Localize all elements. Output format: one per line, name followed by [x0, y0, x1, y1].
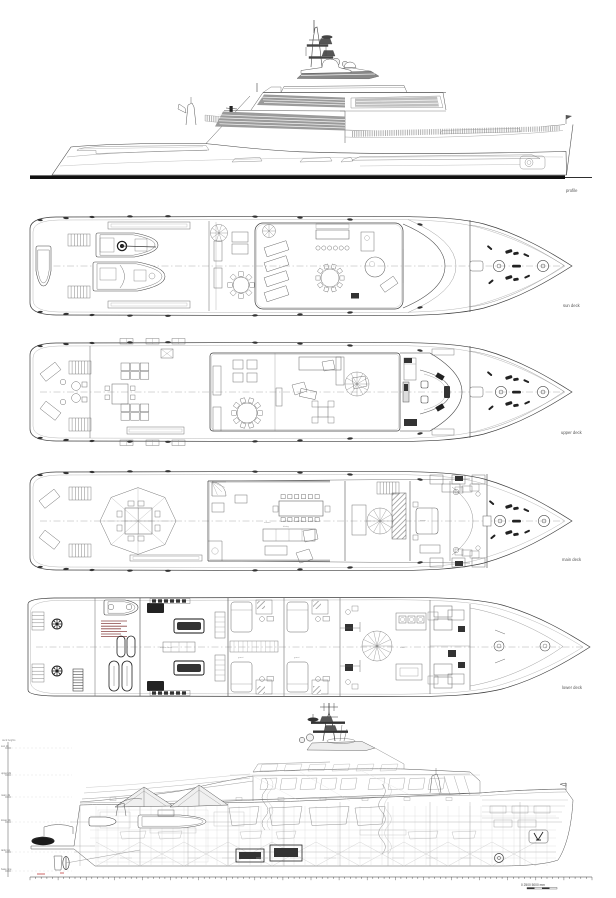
svg-text:lower deck: lower deck — [562, 685, 583, 690]
svg-text:engine room: engine room — [160, 646, 172, 649]
svg-text:sun dk: sun dk — [1, 744, 9, 748]
svg-text:guest: guest — [238, 656, 244, 659]
svg-text:0 2500 5000 mm: 0 2500 5000 mm — [521, 883, 545, 887]
svg-text:lower dk: lower dk — [1, 818, 11, 822]
svg-text:deck heights: deck heights — [2, 739, 16, 742]
svg-text:upper deck: upper deck — [561, 430, 583, 435]
svg-text:guest: guest — [294, 656, 300, 659]
svg-text:saloon: saloon — [264, 522, 271, 524]
svg-text:upper dk: upper dk — [1, 771, 12, 775]
svg-text:sun deck: sun deck — [563, 303, 581, 308]
svg-text:crew: crew — [400, 646, 405, 649]
svg-text:dining: dining — [283, 526, 290, 528]
svg-text:owner: owner — [420, 519, 426, 522]
svg-text:base line: base line — [1, 867, 12, 871]
svg-text:main dk: main dk — [1, 793, 11, 797]
svg-text:tank top: tank top — [1, 848, 11, 852]
svg-text:main deck: main deck — [562, 557, 582, 562]
svg-text:profile: profile — [566, 188, 578, 193]
